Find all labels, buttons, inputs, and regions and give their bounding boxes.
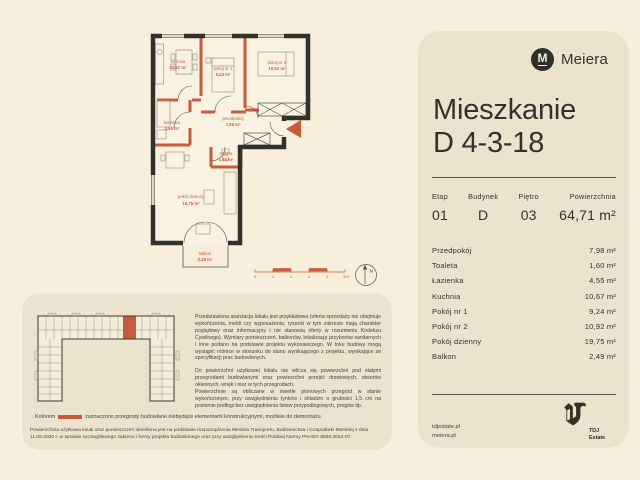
- room-row: Przedpokój7,98 m²: [432, 243, 616, 258]
- link-meiera[interactable]: meiera.pl: [432, 432, 460, 441]
- disclaimer-text: Przedstawiona aranżacja lokalu jest przy…: [195, 314, 381, 410]
- info-card: Przedstawiona aranżacja lokalu jest przy…: [22, 293, 392, 450]
- svg-text:4: 4: [326, 274, 329, 279]
- room-row: Kuchnia10,67 m²: [432, 289, 616, 304]
- summary-col-etap: Etap 01: [432, 192, 448, 223]
- legend-text: zaznaczono przegrody budowlane niebędące…: [85, 414, 322, 420]
- summary-table: Etap 01 Budynek D Piętro 03 Powierzchnia…: [432, 192, 616, 223]
- svg-text:łazienka: łazienka: [164, 120, 180, 125]
- room-row: Pokój dzienny19,75 m²: [432, 334, 616, 349]
- svg-text:1: 1: [272, 274, 275, 279]
- svg-text:10,92 m²: 10,92 m²: [268, 66, 286, 71]
- room-row: Łazienka4,55 m²: [432, 273, 616, 288]
- svg-text:kuchnia: kuchnia: [171, 59, 186, 64]
- flyer-page: { "colors": { "background": "#f7efdc", "…: [0, 0, 640, 480]
- svg-text:7,98 m²: 7,98 m²: [226, 122, 241, 127]
- room-row: Toaleta1,60 m²: [432, 258, 616, 273]
- svg-text:5m: 5m: [343, 274, 349, 279]
- title-line-1: Mieszkanie: [433, 94, 576, 127]
- svg-text:balkon: balkon: [199, 251, 212, 256]
- summary-col-powierzchnia: Powierzchnia 64,71 m²: [559, 192, 616, 223]
- divider-bottom: [432, 394, 616, 395]
- divider-top: [432, 177, 616, 178]
- balcony-outline: [183, 245, 228, 267]
- svg-text:10,67 m²: 10,67 m²: [169, 65, 187, 70]
- svg-text:przedpokój: przedpokój: [222, 116, 243, 121]
- svg-text:N: N: [370, 269, 373, 274]
- svg-text:3: 3: [308, 274, 311, 279]
- legend-row: Kolorem zaznaczono przegrody budowlane n…: [35, 414, 322, 420]
- tdj-estate-glyph-icon: [562, 401, 588, 427]
- floor-plan: kuchnia 10,67 m² pokój nr 1 9,24 m² pokó…: [150, 28, 385, 295]
- highlighted-unit: [123, 317, 136, 339]
- svg-text:19,75 m²: 19,75 m²: [182, 201, 200, 206]
- monogram-underline: [538, 65, 547, 67]
- monogram-letter: M: [537, 53, 547, 64]
- page-title: Mieszkanie D 4-3-18: [433, 94, 576, 160]
- partition-color-swatch: [58, 415, 82, 419]
- brand-logo: M Meiera: [531, 48, 608, 71]
- tdj-estate-wordmark: TDJ Estate: [589, 428, 605, 442]
- footer-links: tdjestate.pl meiera.pl: [432, 423, 460, 441]
- tdj-estate-logo: TDJ Estate: [562, 401, 610, 473]
- fine-print: Powierzchnia użytkowa lokali oraz pomies…: [30, 428, 388, 442]
- north-compass-icon: N: [356, 265, 377, 286]
- scale-bar: 0 1 2 3 4 5m: [254, 268, 350, 279]
- entrance-gap: [281, 121, 286, 137]
- meiera-monogram-icon: M: [531, 48, 554, 71]
- svg-text:pokój dzienny: pokój dzienny: [178, 194, 205, 199]
- svg-text:9,24 m²: 9,24 m²: [216, 72, 231, 77]
- room-list: Przedpokój7,98 m² Toaleta1,60 m² Łazienk…: [432, 243, 616, 365]
- room-row: Pokój nr 210,92 m²: [432, 319, 616, 334]
- svg-text:2,49 m²: 2,49 m²: [198, 257, 213, 262]
- svg-text:0: 0: [254, 274, 257, 279]
- entrance-arrow-icon: [286, 120, 301, 138]
- brand-name: Meiera: [561, 51, 608, 68]
- svg-text:pokój nr 2: pokój nr 2: [268, 60, 287, 65]
- disclaimer-paragraph-1: Przedstawiona aranżacja lokalu jest przy…: [195, 314, 381, 362]
- svg-text:4,55 m²: 4,55 m²: [165, 126, 180, 131]
- building-outline: [38, 316, 174, 401]
- svg-text:1,60 m²: 1,60 m²: [219, 157, 234, 162]
- legend-prefix: Kolorem: [35, 414, 55, 420]
- summary-col-pietro: Piętro 03: [518, 192, 539, 223]
- link-tdjestate[interactable]: tdjestate.pl: [432, 423, 460, 432]
- svg-text:pokój nr 1: pokój nr 1: [214, 66, 233, 71]
- title-line-2: D 4-3-18: [433, 127, 576, 160]
- building-site-plan: [32, 309, 182, 404]
- svg-text:toaleta: toaleta: [220, 151, 234, 156]
- room-row: Pokój nr 19,24 m²: [432, 304, 616, 319]
- svg-text:2: 2: [290, 274, 293, 279]
- apartment-card: M Meiera Mieszkanie D 4-3-18 Etap 01 Bud…: [418, 31, 629, 448]
- disclaimer-paragraph-2: Do powierzchni użytkowej lokalu nie wlic…: [195, 368, 381, 389]
- summary-col-budynek: Budynek D: [468, 192, 498, 223]
- disclaimer-paragraph-3: Powierzchnie są obliczane w świetle pion…: [195, 389, 381, 410]
- room-row: Balkon2,49 m²: [432, 349, 616, 364]
